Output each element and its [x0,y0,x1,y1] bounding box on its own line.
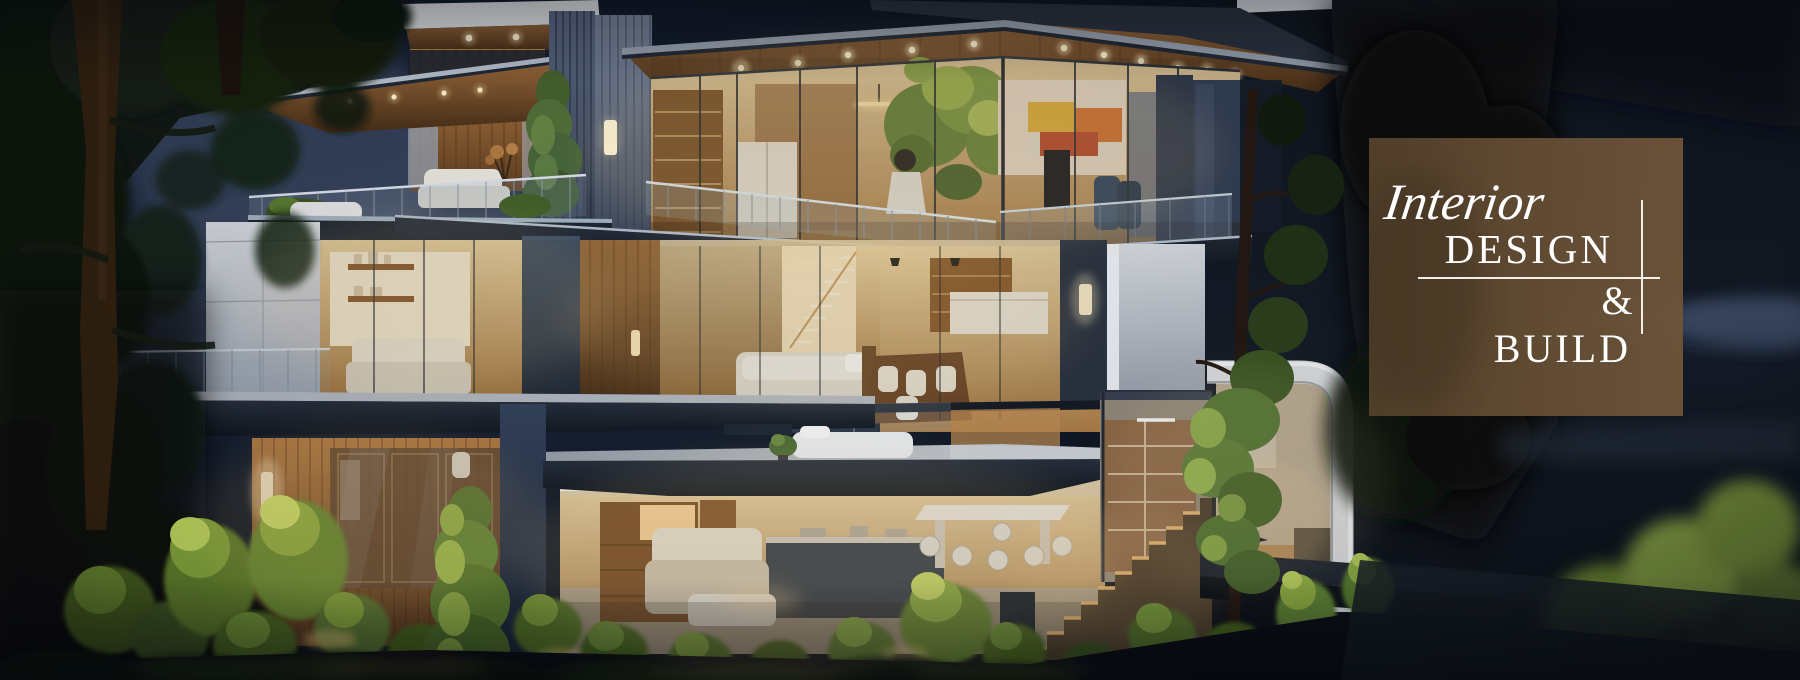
svg-text:Interior: Interior [1380,174,1549,231]
svg-text:DESIGN: DESIGN [1445,226,1613,272]
svg-text:BUILD: BUILD [1494,326,1631,371]
svg-text:&: & [1601,278,1632,323]
